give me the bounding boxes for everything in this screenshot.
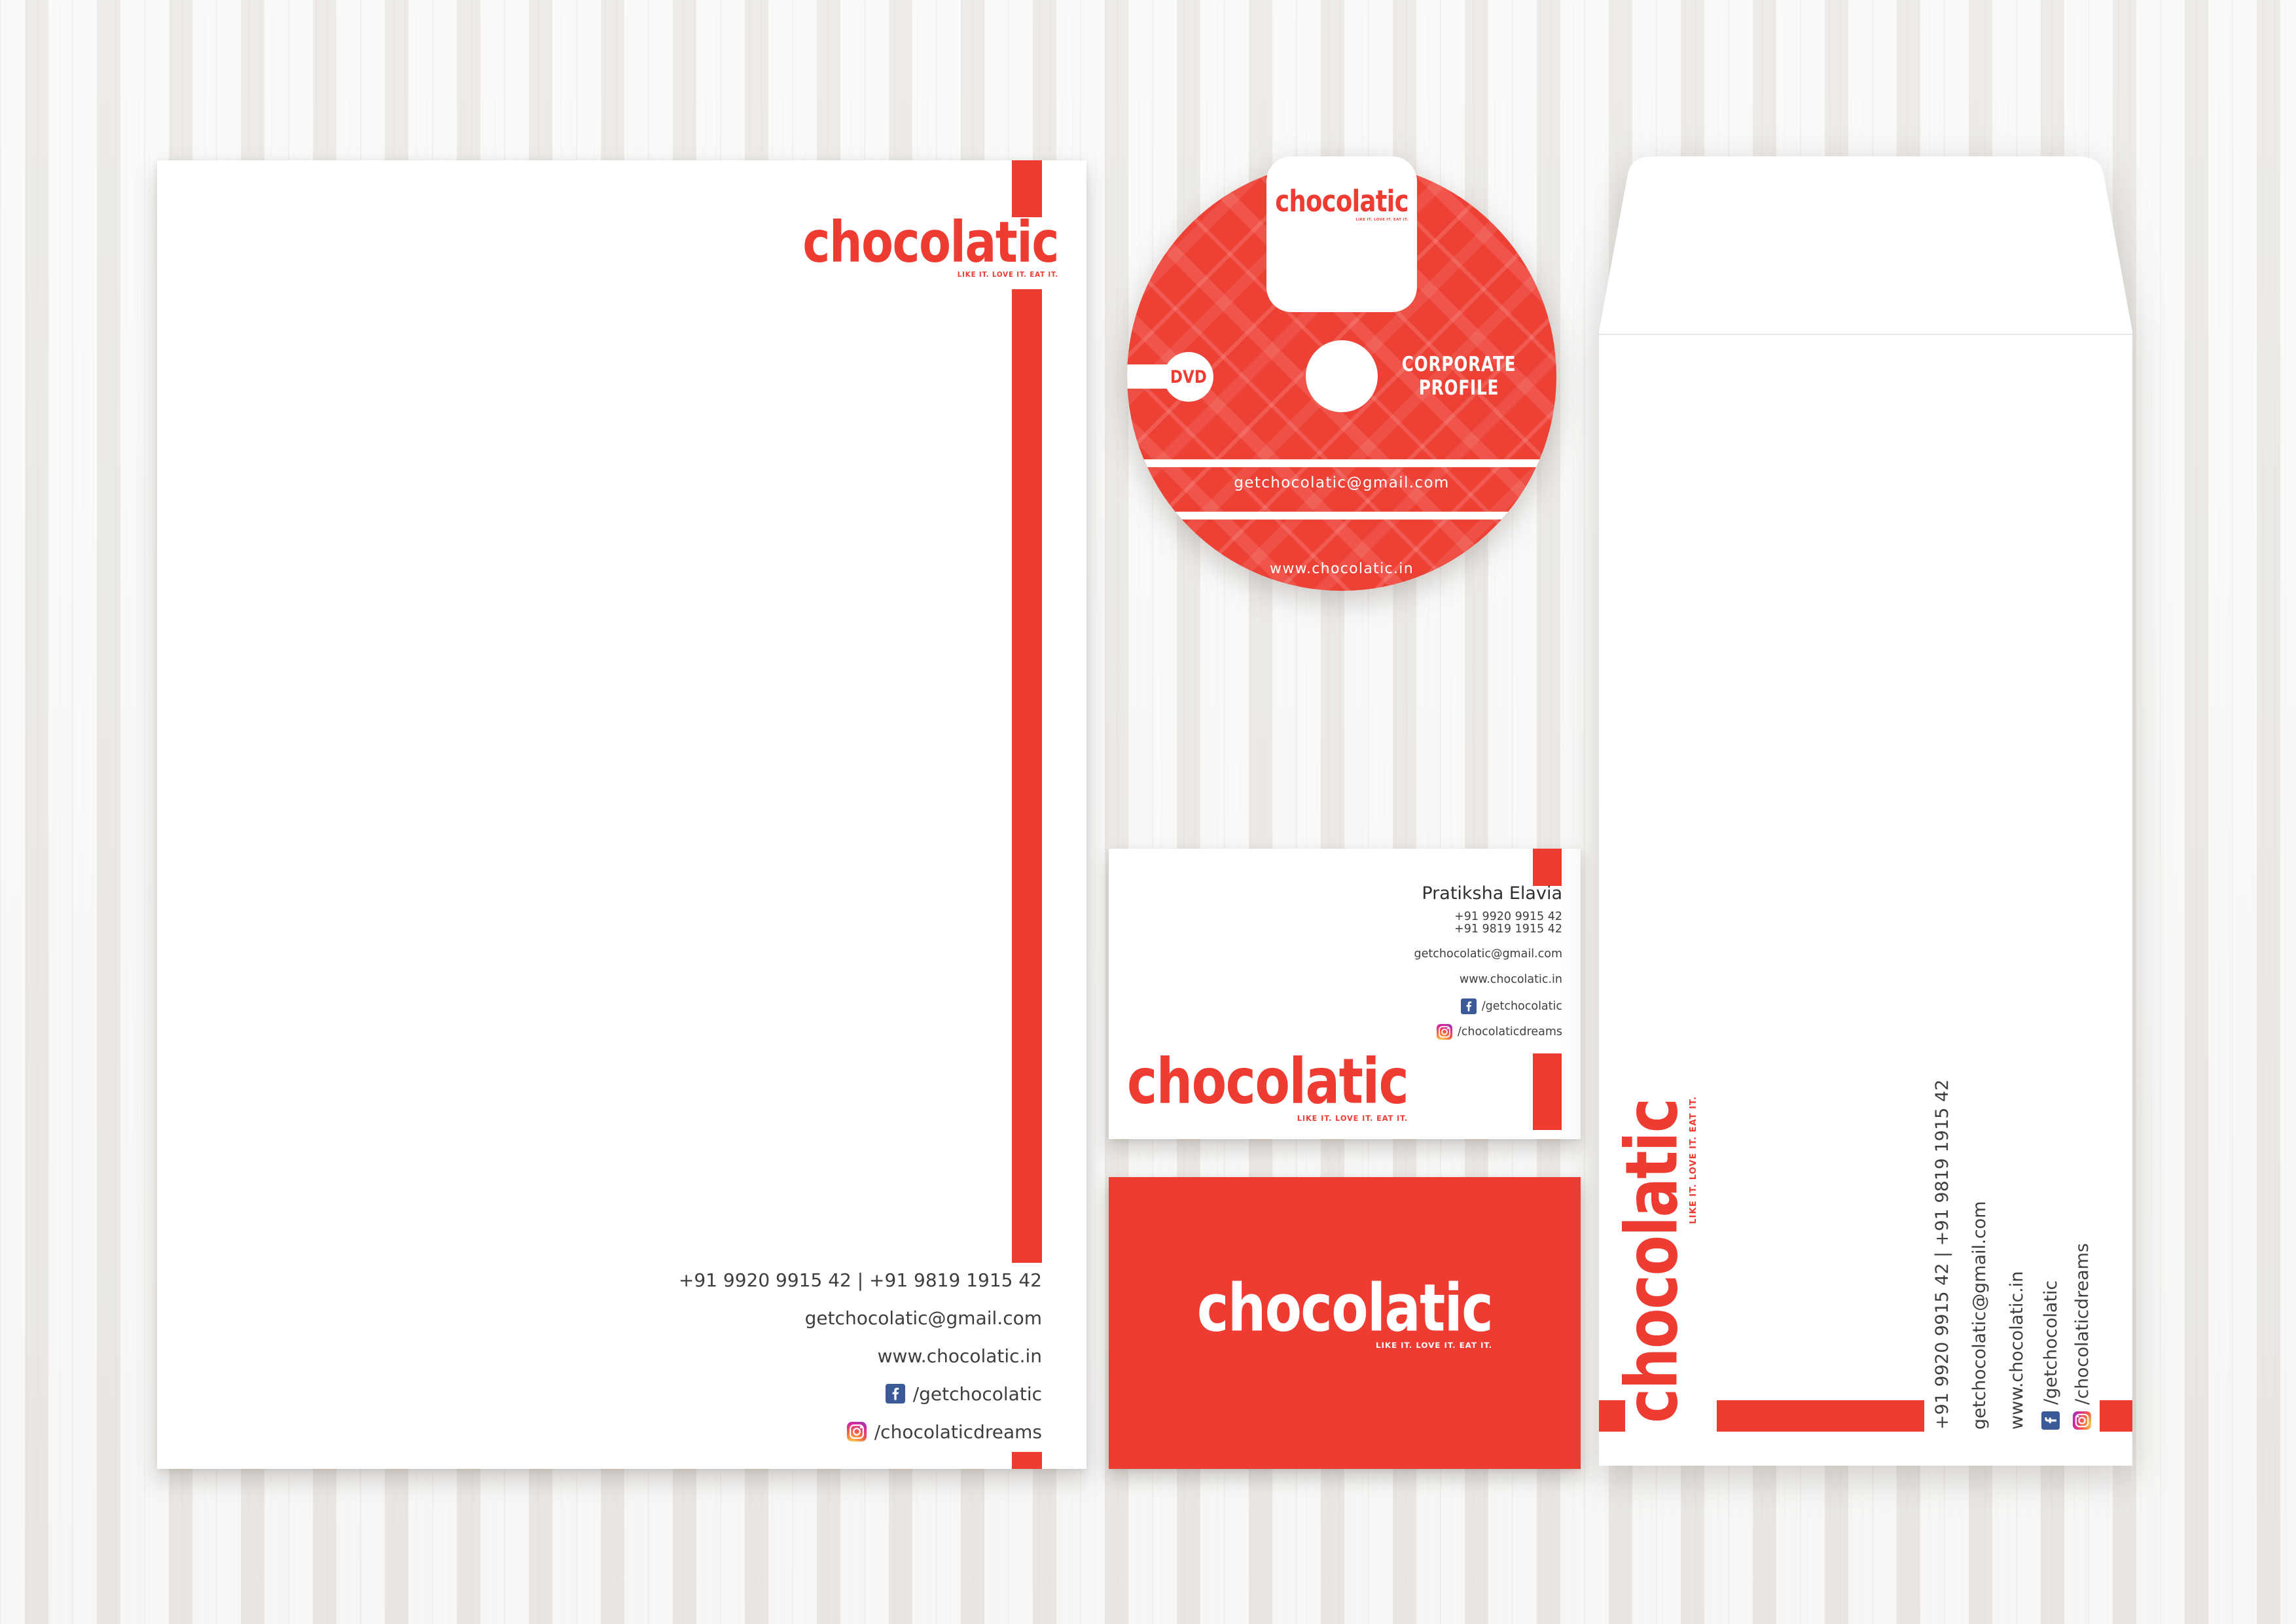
envelope-phones: +91 9920 9915 42 | +91 9819 1915 42 — [1930, 1126, 1954, 1430]
dvd-title-line2: PROFILE — [1399, 376, 1519, 400]
email-address: getchocolatic@gmail.com — [805, 1299, 1042, 1337]
brand-logo-word: chocolatic — [1275, 188, 1408, 216]
instagram-row: /chocolaticdreams — [847, 1413, 1042, 1451]
brand-logo: chocolatic LIKE IT. LOVE IT. EAT IT. — [1632, 1096, 1698, 1423]
facebook-row: /getchocolatic — [886, 1375, 1042, 1413]
card-stripe-bottom — [1533, 1053, 1562, 1130]
letterhead-stripe-bottom — [1012, 1452, 1042, 1469]
brand-logo-word: chocolatic — [1197, 1279, 1492, 1339]
dvd-divider-line-bottom — [1127, 512, 1556, 520]
instagram-handle: /chocolaticdreams — [874, 1421, 1042, 1443]
website-url: www.chocolatic.in — [1460, 974, 1562, 986]
dvd-center-hole — [1306, 340, 1378, 412]
email-address: getchocolatic@gmail.com — [1969, 1201, 1990, 1430]
facebook-icon — [2041, 1411, 2060, 1430]
letterhead-stripe-middle — [1012, 289, 1042, 1263]
dvd-title: CORPORATE PROFILE — [1399, 353, 1519, 400]
facebook-handle: /getchocolatic — [1482, 1000, 1562, 1013]
facebook-handle: /getchocolatic — [2041, 1280, 2061, 1405]
instagram-icon — [847, 1422, 867, 1441]
brand-logo: chocolatic LIKE IT. LOVE IT. EAT IT. — [1197, 1290, 1492, 1350]
phone-numbers: +91 9920 9915 42 | +91 9819 1915 42 — [1932, 1080, 1952, 1430]
brand-logo-word: chocolatic — [1620, 1096, 1686, 1423]
brand-tagline: LIKE IT. LOVE IT. EAT IT. — [1275, 219, 1408, 222]
envelope-flap — [1599, 156, 2132, 335]
phone-number-1: +91 9920 9915 42 — [1454, 911, 1562, 923]
dvd-disc: getchocolatic@gmail.com www.chocolatic.i… — [1127, 162, 1556, 591]
phone-number-2: +91 9819 1915 42 — [1454, 923, 1562, 936]
envelope-band-middle — [1717, 1400, 1924, 1432]
stationery-mockup-scene: chocolatic LIKE IT. LOVE IT. EAT IT. +91… — [0, 0, 2296, 1624]
brand-logo-word: chocolatic — [802, 217, 1058, 269]
envelope-facebook: /getchocolatic — [2039, 1304, 2062, 1430]
instagram-icon — [2073, 1411, 2091, 1430]
envelope-email: getchocolatic@gmail.com — [1967, 1241, 1991, 1430]
brand-logo-word: chocolatic — [1127, 1054, 1408, 1112]
email-address: getchocolatic@gmail.com — [1414, 948, 1562, 961]
dvd-label-notch: chocolatic LIKE IT. LOVE IT. EAT IT. — [1266, 156, 1417, 312]
card-contact-block: Pratiksha Elavia +91 9920 9915 42 +91 98… — [1414, 883, 1562, 1040]
facebook-icon — [886, 1384, 905, 1403]
dvd-email: getchocolatic@gmail.com — [1127, 474, 1556, 491]
letterhead-contact-block: +91 9920 9915 42 | +91 9819 1915 42 getc… — [679, 1261, 1042, 1451]
dvd-format-badge: DVD — [1164, 352, 1213, 402]
brand-logo: chocolatic LIKE IT. LOVE IT. EAT IT. — [1275, 193, 1408, 312]
dvd-title-line1: CORPORATE — [1399, 353, 1519, 376]
person-name: Pratiksha Elavia — [1422, 883, 1562, 905]
facebook-row: /getchocolatic — [1461, 998, 1562, 1014]
card-stripe-top — [1533, 849, 1562, 886]
brand-logo: chocolatic LIKE IT. LOVE IT. EAT IT. — [802, 226, 1058, 279]
instagram-handle: /chocolaticdreams — [1458, 1025, 1562, 1038]
envelope-band-right — [2100, 1400, 2132, 1432]
facebook-icon — [1461, 998, 1477, 1014]
envelope: chocolatic LIKE IT. LOVE IT. EAT IT. +91… — [1599, 156, 2132, 1466]
envelope-logo-area: chocolatic LIKE IT. LOVE IT. EAT IT. — [1632, 1096, 1707, 1423]
dvd-divider-line-top — [1127, 459, 1556, 467]
dvd-format-label: DVD — [1170, 367, 1207, 387]
website-url: www.chocolatic.in — [878, 1337, 1042, 1375]
instagram-icon — [1437, 1024, 1452, 1040]
letterhead-sheet: chocolatic LIKE IT. LOVE IT. EAT IT. +91… — [157, 160, 1086, 1469]
envelope-website: www.chocolatic.in — [2005, 1300, 2028, 1430]
dvd-website: www.chocolatic.in — [1127, 561, 1556, 577]
facebook-handle: /getchocolatic — [913, 1383, 1042, 1405]
business-card-front: Pratiksha Elavia +91 9920 9915 42 +91 98… — [1109, 849, 1581, 1139]
instagram-row: /chocolaticdreams — [1437, 1024, 1562, 1040]
business-card-back: chocolatic LIKE IT. LOVE IT. EAT IT. — [1109, 1177, 1581, 1469]
envelope-instagram: /chocolaticdreams — [2070, 1272, 2094, 1430]
website-url: www.chocolatic.in — [2007, 1271, 2027, 1430]
instagram-handle: /chocolaticdreams — [2072, 1243, 2092, 1405]
phone-numbers: +91 9920 9915 42 | +91 9819 1915 42 — [679, 1261, 1042, 1299]
brand-logo: chocolatic LIKE IT. LOVE IT. EAT IT. — [1127, 1065, 1408, 1122]
